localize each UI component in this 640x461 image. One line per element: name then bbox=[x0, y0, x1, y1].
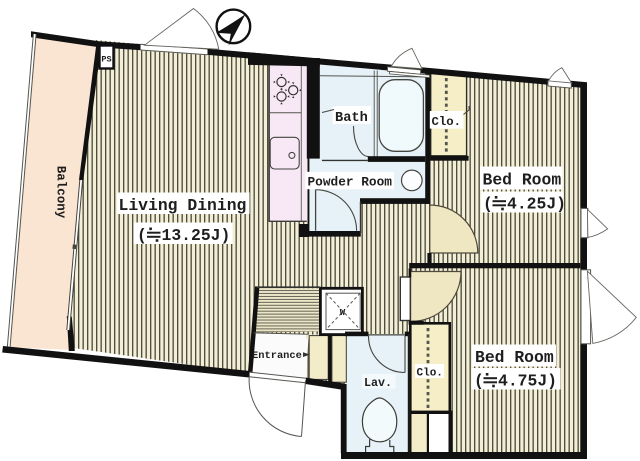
svg-text:Clo.: Clo. bbox=[417, 368, 443, 380]
svg-text:W: W bbox=[340, 308, 346, 318]
svg-text:Bed Room: Bed Room bbox=[475, 348, 554, 367]
svg-text:PS: PS bbox=[101, 55, 111, 65]
svg-text:4.75J): 4.75J) bbox=[498, 371, 557, 390]
svg-text:(: ( bbox=[474, 371, 484, 390]
svg-text:Powder Room: Powder Room bbox=[308, 175, 393, 190]
svg-text:Bed Room: Bed Room bbox=[483, 171, 562, 190]
svg-text:Living Dining: Living Dining bbox=[119, 196, 247, 215]
svg-text:(: ( bbox=[137, 226, 147, 245]
svg-text:Balcony: Balcony bbox=[54, 166, 68, 219]
svg-text:Lav.: Lav. bbox=[364, 376, 392, 390]
svg-text:Bath: Bath bbox=[335, 111, 368, 126]
svg-text:Clo.: Clo. bbox=[432, 115, 462, 129]
svg-text:4.25J): 4.25J) bbox=[507, 194, 566, 213]
svg-text:13.25J): 13.25J) bbox=[162, 226, 231, 245]
svg-text:(: ( bbox=[483, 194, 493, 213]
svg-text:Entrance: Entrance bbox=[252, 350, 302, 362]
